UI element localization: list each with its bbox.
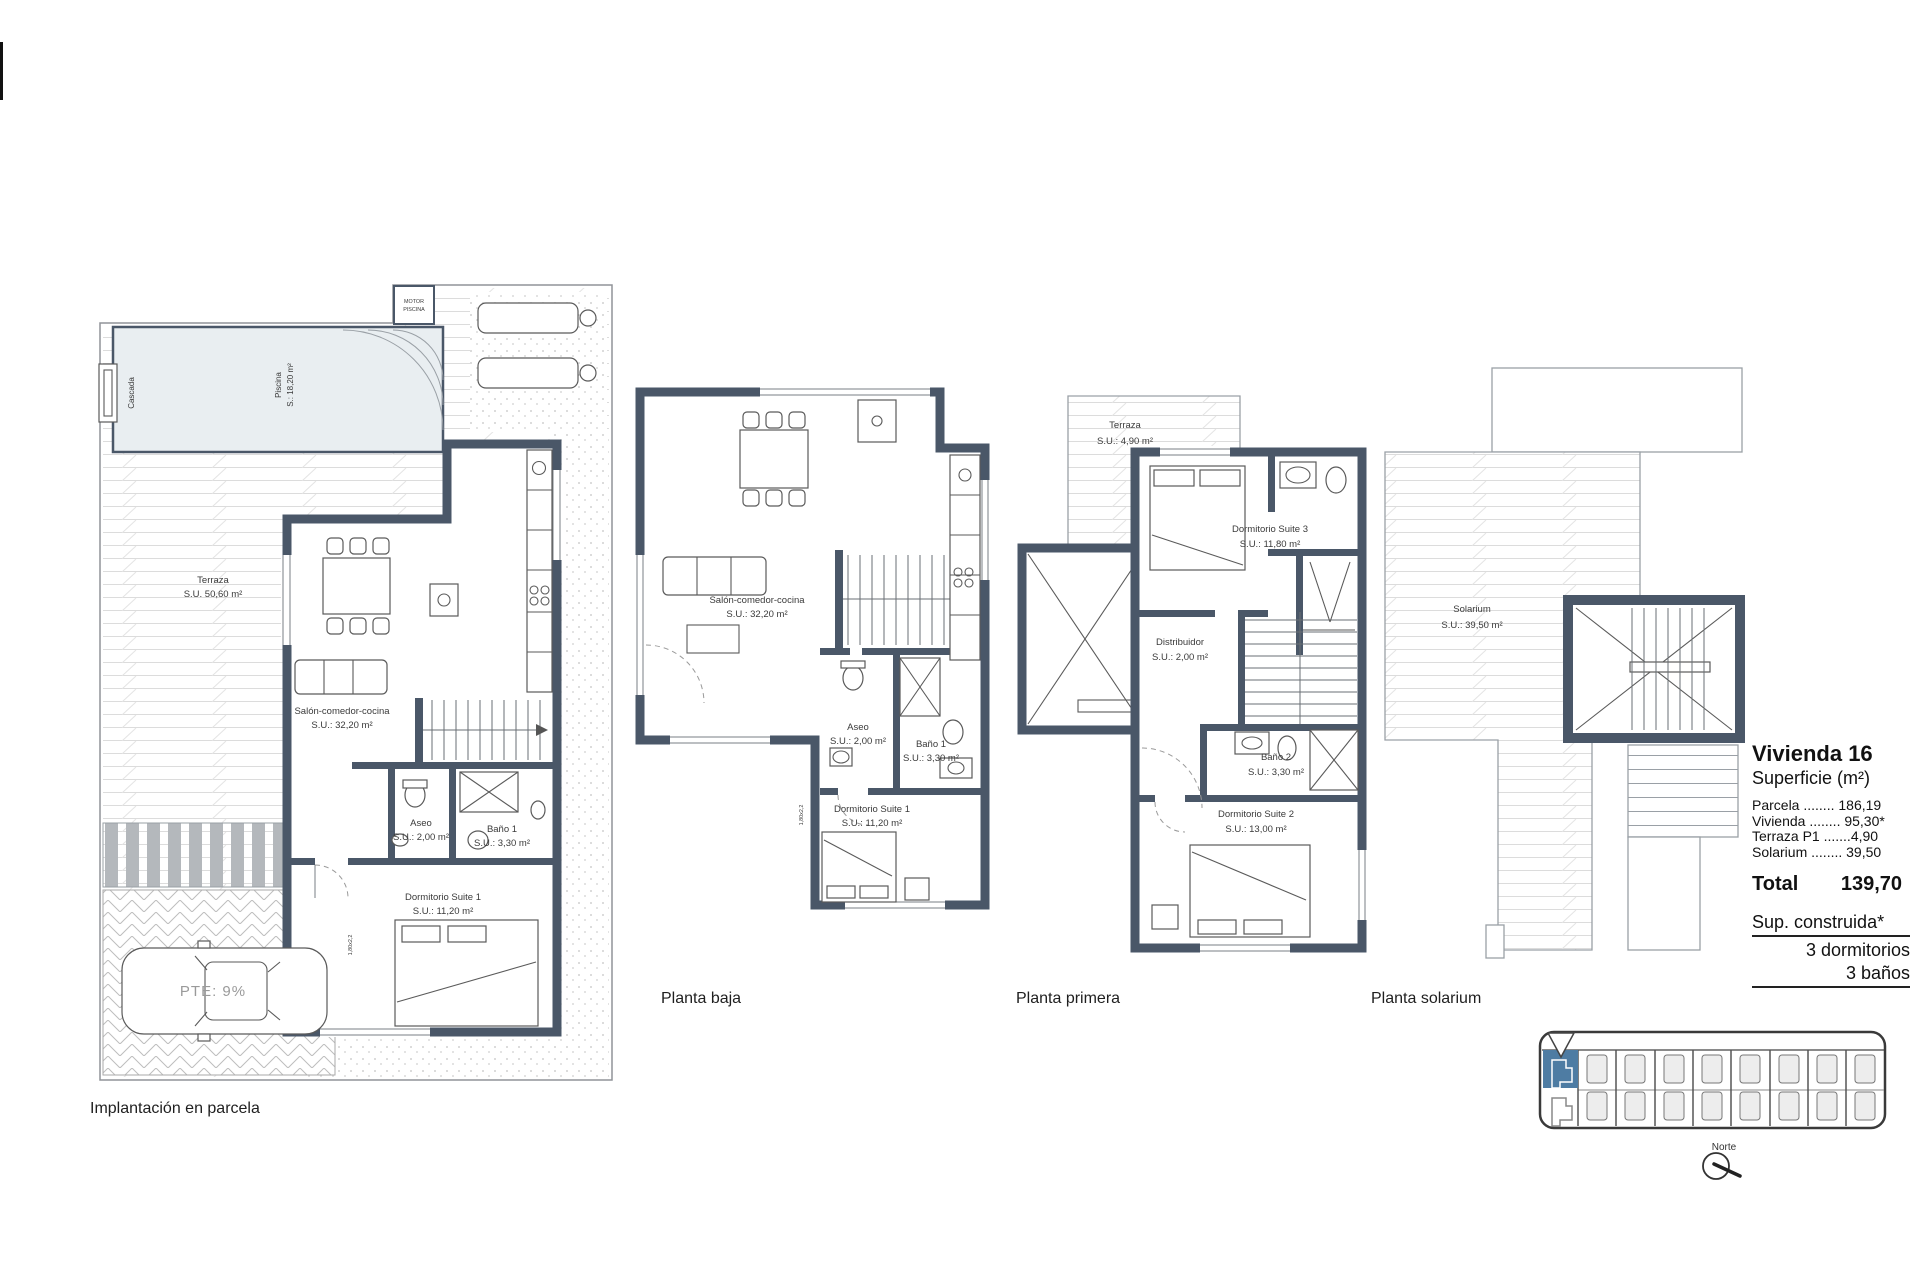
sofa — [663, 557, 766, 595]
car-mirror — [198, 1034, 210, 1041]
aseo-area: S.U.: 2,00 m² — [393, 832, 449, 843]
pergola-grid — [1628, 745, 1738, 837]
dim-tag: 1,80x2,2 — [799, 805, 805, 826]
oven — [430, 584, 458, 616]
fridge — [858, 400, 896, 442]
surface-row-terraza: Terraza P1 .......4,90 — [1752, 829, 1910, 845]
gravel-band-bottom — [300, 1030, 609, 1077]
dorm2-area: S.U.: 13,00 m² — [1225, 824, 1286, 835]
dorm1-area: S.U.: 11,20 m² — [413, 906, 474, 917]
car-mirror — [198, 941, 210, 948]
dorm1-label: Dormitorio Suite 1 — [834, 804, 910, 815]
roof-outline — [1492, 368, 1742, 452]
dorm3-area: S.U.: 11,80 m² — [1240, 539, 1301, 550]
salon-area: S.U.: 32,20 m² — [726, 609, 787, 620]
pergola-slats — [103, 823, 300, 887]
distribuidor-area: S.U.: 2,00 m² — [1152, 652, 1208, 663]
bano2-label: Baño 2 — [1261, 752, 1291, 763]
pump-label-2: PISCINA — [403, 307, 425, 313]
solarium-label: Solarium — [1453, 604, 1491, 615]
blueprint-page: Terraza S.U. 50,60 m² Salón-comedor-coci… — [0, 0, 1920, 1280]
terraza-area: S.U. 50,60 m² — [184, 589, 243, 600]
bano1-label: Baño 1 — [487, 824, 517, 835]
salon-area: S.U.: 32,20 m² — [311, 720, 372, 731]
pool — [99, 327, 443, 452]
total-row: Total 139,70 — [1752, 873, 1902, 896]
unit-title: Vivienda 16 — [1752, 742, 1910, 766]
bano1-label: Baño 1 — [916, 739, 946, 750]
terraza-area: S.U.: 4,90 m² — [1097, 436, 1153, 447]
compass: Norte — [1703, 1142, 1740, 1179]
cascada-label: Cascada — [127, 377, 136, 409]
built-surface-note: Sup. construida* — [1752, 912, 1910, 937]
site-plan: Terraza S.U. 50,60 m² Salón-comedor-coci… — [99, 285, 612, 1080]
ramp-slope-label: PTE: 9% — [180, 983, 246, 1000]
caption-planta-baja: Planta baja — [661, 990, 741, 1008]
kitchen-counter — [527, 450, 552, 692]
planta-primera-plan: Terraza S.U.: 4,90 m² Dormitorio Suite 3… — [1022, 396, 1367, 953]
salon-label: Salón-comedor-cocina — [709, 595, 805, 606]
dorm3-label: Dormitorio Suite 3 — [1232, 524, 1308, 535]
summary-panel: Vivienda 16 Superficie (m²) Parcela ....… — [1752, 742, 1910, 988]
north-label: Norte — [1712, 1142, 1737, 1153]
lower-roof — [1628, 837, 1700, 950]
wc — [1326, 467, 1346, 493]
total-label: Total — [1752, 873, 1798, 896]
dorm1-area: S.U.: 11,20 m² — [842, 818, 903, 829]
pump-label-1: MOTOR — [404, 299, 424, 305]
floorplan-drawing: Terraza S.U. 50,60 m² Salón-comedor-coci… — [0, 0, 1920, 1280]
aseo-area: S.U.: 2,00 m² — [830, 736, 886, 747]
terraza-label: Terraza — [1109, 420, 1141, 431]
pool-area-label: S.: 18,20 m² — [286, 363, 295, 407]
surface-rows: Parcela ........ 186,19 Vivienda .......… — [1752, 798, 1910, 860]
caption-site-plan: Implantación en parcela — [90, 1100, 260, 1118]
dining-table — [323, 558, 390, 614]
aseo-label: Aseo — [410, 818, 432, 829]
scan-mark — [0, 42, 3, 100]
surface-row-vivienda: Vivienda ........ 95,30* — [1752, 814, 1910, 830]
planta-solarium-plan: Solarium S.U.: 39,50 m² — [1385, 368, 1742, 958]
total-value: 139,70 — [1841, 873, 1902, 896]
dining-table — [740, 430, 808, 488]
salon-label: Salón-comedor-cocina — [294, 706, 390, 717]
dorm2-label: Dormitorio Suite 2 — [1218, 809, 1294, 820]
surface-subtitle: Superficie (m²) — [1752, 767, 1910, 789]
wc — [843, 666, 863, 690]
bano1-area: S.U.: 3,30 m² — [903, 753, 959, 764]
solarium-area: S.U.: 39,50 m² — [1441, 620, 1502, 631]
surface-row-parcela: Parcela ........ 186,19 — [1752, 798, 1910, 814]
caption-planta-solarium: Planta solarium — [1371, 990, 1481, 1008]
caption-planta-primera: Planta primera — [1016, 990, 1120, 1008]
dim-tag: 1,80x2,2 — [348, 935, 354, 956]
nightstand — [1152, 905, 1178, 929]
bano1-area: S.U.: 3,30 m² — [474, 838, 530, 849]
surface-row-solarium: Solarium ........ 39,50 — [1752, 845, 1910, 861]
nightstand — [905, 878, 929, 900]
pool-pump-box — [394, 286, 434, 324]
distribuidor-label: Distribuidor — [1156, 637, 1204, 648]
cascada-feature — [99, 364, 117, 422]
bedrooms-count: 3 dormitorios — [1752, 940, 1910, 961]
deck-stub — [1486, 925, 1504, 958]
bano2-area: S.U.: 3,30 m² — [1248, 767, 1304, 778]
dorm1-label: Dormitorio Suite 1 — [405, 892, 481, 903]
kitchen-counter — [950, 455, 980, 660]
plot-locator: Norte — [1540, 1032, 1885, 1179]
sofa — [295, 660, 387, 694]
pool-label: Piscina — [274, 372, 283, 398]
planta-baja-plan: Salón-comedor-cocina S.U.: 32,20 m² Aseo… — [634, 386, 990, 910]
bathrooms-count: 3 baños — [1752, 963, 1910, 988]
terraza-label: Terraza — [197, 575, 229, 586]
aseo-label: Aseo — [847, 722, 869, 733]
